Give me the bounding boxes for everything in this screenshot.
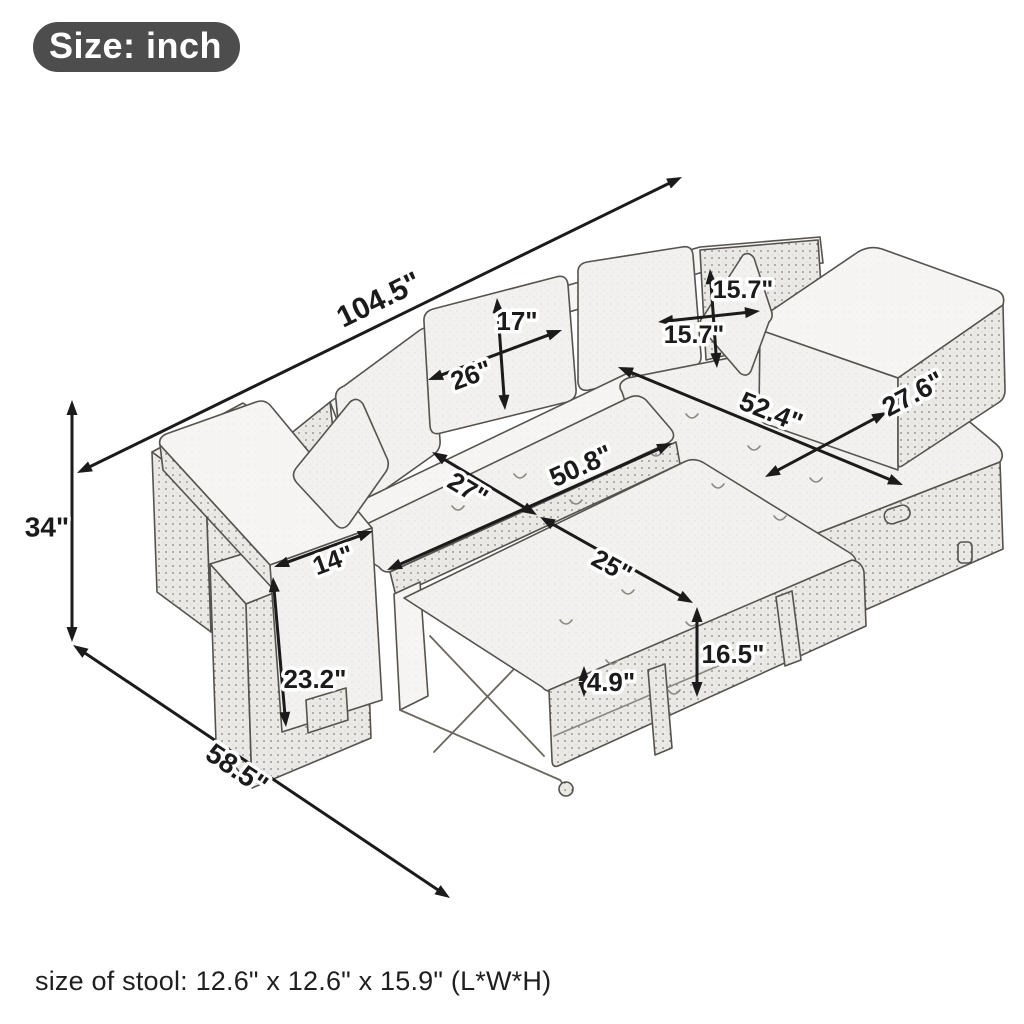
sofa-sketch xyxy=(152,237,1005,796)
dimension-label-mattress-step-height: 4.9" xyxy=(587,667,635,697)
dimension-label-bed-height: 16.5" xyxy=(702,639,765,669)
dimension-label-pillow-height: 15.7" xyxy=(713,276,774,304)
dimension-label-armrest-height: 23.2" xyxy=(284,664,347,694)
dimension-label-pillow-width: 15.7" xyxy=(664,321,725,349)
dimension-label-overall-height: 34" xyxy=(25,512,69,543)
product-dimension-diagram: 104.5"34"58.5"14"23.2"17"26"15.7"15.7"52… xyxy=(0,0,1024,1024)
sofa-dimension-illustration: 104.5"34"58.5"14"23.2"17"26"15.7"15.7"52… xyxy=(0,0,1024,1024)
chaise-leg-right xyxy=(958,542,972,563)
stool-size-note: size of stool: 12.6" x 12.6" x 15.9" (L*… xyxy=(35,966,551,997)
dimension-mattress-step-height: 4.9" xyxy=(579,666,636,697)
dimension-overall-height: 34" xyxy=(25,400,78,642)
size-unit-badge: Size: inch xyxy=(33,22,240,72)
dimension-label-back-cushion-height: 17" xyxy=(496,306,537,336)
